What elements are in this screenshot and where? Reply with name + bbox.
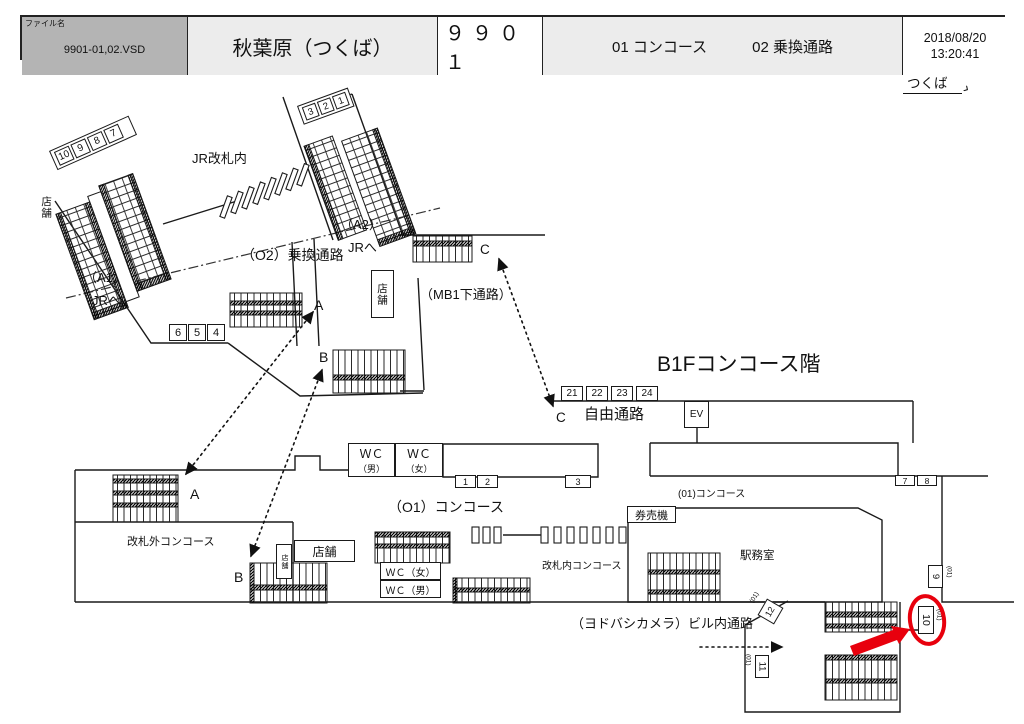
point-b-lower: B [234,569,243,585]
shop-box-small: 店舗 [276,544,292,579]
floor-title: B1Fコンコース階 [657,353,820,377]
ad-box-row-7-8: 7 8 [895,475,937,486]
ad-box-row-1-2: 1 2 [455,475,498,488]
wc-women-upper: ＷＣ （女） [395,443,443,477]
yodobashi-label: （ヨドバシカメラ）ビル内通路 [571,617,753,632]
red-arrow-icon [850,626,910,656]
ad-box-8: 8 [917,475,937,486]
stair-yodobashi-lower [825,655,897,700]
wc-men-lower: ＷＣ（男） [380,580,441,598]
free-passage-label: 自由通路 [584,406,644,423]
jr-ticket-gates [220,164,309,219]
location-tag-12: (01) [749,591,761,605]
stair-mb1 [413,236,472,262]
ad-box-2: 2 [477,475,498,488]
location-tag-9: (01) [945,566,952,578]
location-tag-11: (01) [744,654,751,666]
stair-inside-gate-west [375,532,450,563]
tx-ticket-gates [472,527,626,543]
sheet-1: 01 コンコース [612,36,707,57]
ad-box-24: 24 [636,386,658,401]
drawing-code: ９９０１ [437,17,542,75]
connection-arrows [186,259,782,647]
file-label: ファイル名 [25,18,65,29]
shop-box-lower: 店舗 [294,540,355,562]
sheet-names: 01 コンコース 02 乗換通路 [542,17,902,75]
stair-a-lower [113,475,178,522]
point-a-upper: A [314,297,323,313]
ticket-machine-box: 券売機 [627,506,676,523]
date: 2018/08/20 [924,30,987,46]
shop-box-mid: 店舗 [371,270,394,318]
ad-box-4: 4 [207,324,225,341]
jr-inside-label: JR改札内 [192,152,247,167]
ad-box-6: 6 [169,324,187,341]
ad-box-22: 22 [586,386,608,401]
exit-a1-label: （A1） [84,271,126,286]
ad-box-7a: 7 [103,124,124,144]
red-highlight [0,0,1024,724]
mb1-corridor-label: （MB1下通路） [420,288,512,303]
ad-box-5: 5 [188,324,206,341]
station-diagram: ファイル名 9901-01,02.VSD 秋葉原（つくば） ９９０１ 01 コン… [0,0,1024,724]
stair-office [648,553,720,602]
stair-b-upper [333,350,405,393]
exit-a2-dest: JRへ [348,241,377,256]
ad-box-1a: 1 [332,92,350,110]
point-c-upper: C [480,242,490,258]
ad-box-3: 3 [565,475,591,488]
ad-box-10: 10 [918,606,934,634]
ad-box-23: 23 [611,386,633,401]
ad-box-11: 11 [755,655,769,678]
floorplan-drawing [0,0,1024,724]
location-tag-10: (01) [935,609,942,621]
o1-small-label: (01)コンコース [678,489,745,501]
station-title: 秋葉原（つくば） [187,17,437,75]
stair-yodobashi-upper [825,602,897,632]
ad-box-21: 21 [561,386,583,401]
walls [55,94,1014,712]
point-a-lower: A [190,486,199,502]
sheet-2: 02 乗換通路 [752,36,833,57]
time: 13:20:41 [931,46,980,62]
exit-a2-label: （A2） [340,218,382,233]
ad-box-row-21-24: 21 22 23 24 [561,386,658,401]
title-block: ファイル名 9901-01,02.VSD 秋葉原（つくば） ９９０１ 01 コン… [20,15,1005,60]
ad-box-9: 9 [928,565,943,588]
point-b-upper: B [319,349,328,365]
ad-box-2a: 2 [317,97,335,115]
stair-inside-gate-mid [453,578,530,603]
wc-men-upper: ＷＣ （男） [348,443,395,477]
shop-label-west: 店舗 [40,196,52,219]
o2-corridor-label: （O2）乗換通路 [241,247,344,263]
datetime-cell: 2018/08/20 13:20:41 [902,17,1007,75]
ad-box-row-10-9-8-7: 10 9 8 7 [49,116,137,171]
outside-gate-label: 改札外コンコース [127,536,214,549]
exit-a1-dest: JRへ [92,294,121,309]
ad-box-1: 1 [455,475,476,488]
arrow-c [499,259,553,406]
ad-box-7: 7 [895,475,915,486]
ad-box-12: 12 [758,599,784,625]
inside-gate-label: 改札内コンコース [542,561,622,573]
wc-women-lower: ＷＣ（女） [380,562,441,580]
point-c-lower: C [556,410,566,426]
ad-box-row-3-2-1: 3 2 1 [297,88,355,125]
elevator-box: EV [684,401,709,428]
arrow-b [251,370,322,556]
station-office-label: 駅務室 [740,550,775,563]
ad-box-3a: 3 [302,103,320,121]
file-name-cell: ファイル名 9901-01,02.VSD [22,17,187,75]
o1-concourse-label: （O1）コンコース [388,499,504,515]
ad-box-row-6-5-4: 6 5 4 [169,324,225,341]
direction-tsukuba: つくば [903,76,962,94]
stair-a2 [304,121,416,259]
direction-arrow-icon: › [960,80,973,97]
stair-a-upper [230,293,302,327]
file-name: 9901-01,02.VSD [64,44,145,56]
